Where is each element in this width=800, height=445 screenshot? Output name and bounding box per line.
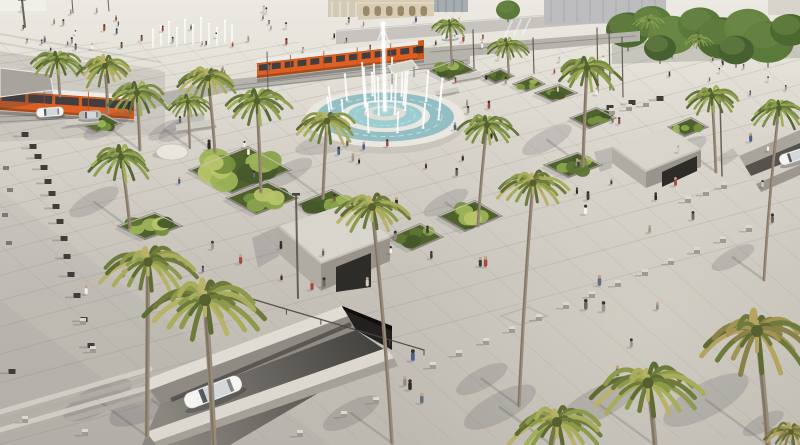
- plaza-aerial-render: [0, 0, 800, 445]
- scene-canvas: [0, 0, 800, 445]
